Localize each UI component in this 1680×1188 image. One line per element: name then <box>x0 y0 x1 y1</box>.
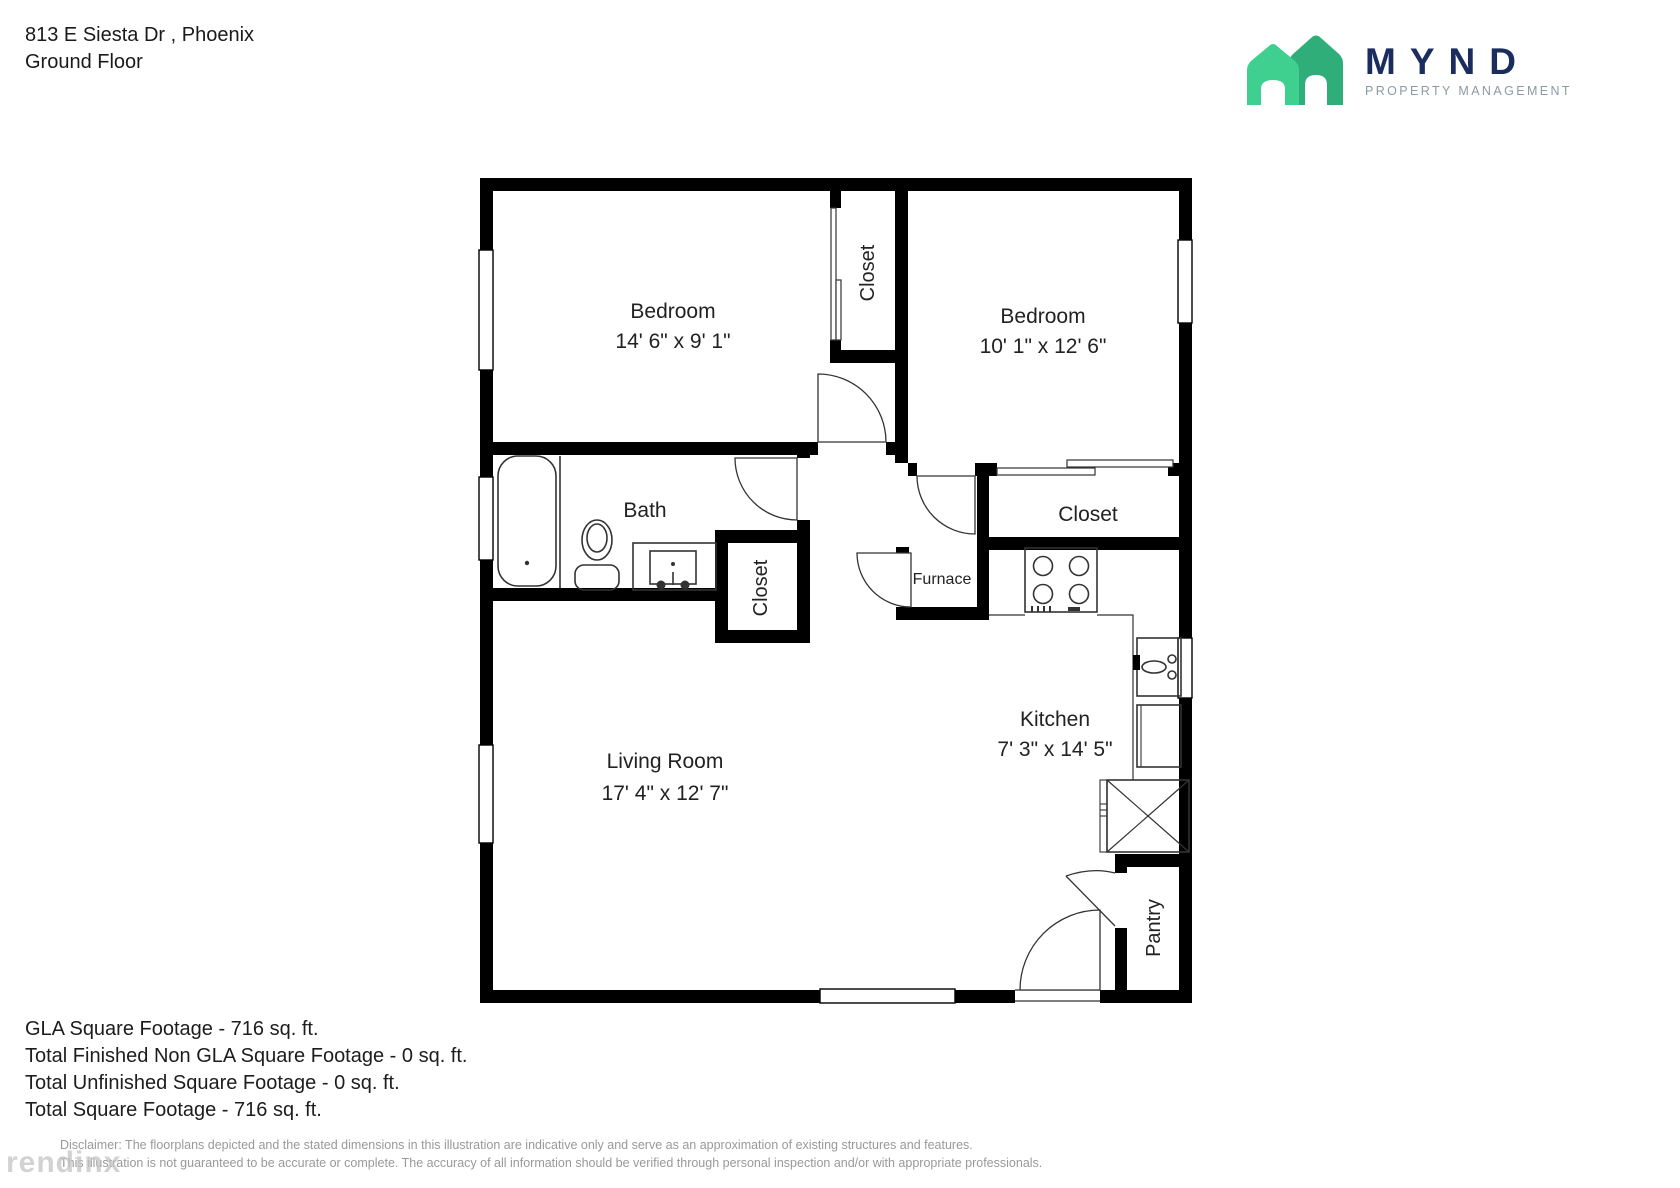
door-arc-bath <box>735 458 797 520</box>
gla-footage: GLA Square Footage - 716 sq. ft. <box>25 1016 467 1043</box>
window-living-bottom <box>820 989 955 1003</box>
mynd-logo: MYND PROPERTY MANAGEMENT <box>1243 33 1572 107</box>
window-bedroom1-left <box>479 250 493 370</box>
door-arc-bedroom2 <box>917 476 975 534</box>
window-bedroom2-right <box>1178 240 1192 323</box>
room-dims-bedroom1: 14' 6" x 9' 1" <box>615 330 730 353</box>
sliding-door-closet2-left <box>997 468 1095 475</box>
square-footage-summary: GLA Square Footage - 716 sq. ft. Total F… <box>25 1016 467 1124</box>
room-dims-living: 17' 4" x 12' 7" <box>602 782 729 805</box>
floor-plan: Bedroom 14' 6" x 9' 1" Closet Bedroom 10… <box>470 168 1212 1018</box>
unfinished-footage: Total Unfinished Square Footage - 0 sq. … <box>25 1070 467 1097</box>
stove-icon <box>1025 548 1097 612</box>
floor-plan-drawing: Bedroom 14' 6" x 9' 1" Closet Bedroom 10… <box>470 168 1212 1013</box>
room-label-closet-bedroom2: Closet <box>1058 503 1118 526</box>
bathtub-icon <box>498 456 556 586</box>
room-label-bedroom1: Bedroom <box>630 300 715 323</box>
room-dims-bedroom2: 10' 1" x 12' 6" <box>980 335 1107 358</box>
door-arc-bedroom1 <box>818 374 886 442</box>
room-label-furnace: Furnace <box>913 571 972 588</box>
total-footage: Total Square Footage - 716 sq. ft. <box>25 1097 467 1124</box>
dishwasher-icon <box>1137 705 1181 767</box>
plan-header: 813 E Siesta Dr , Phoenix Ground Floor <box>25 22 254 76</box>
sliding-door-closet1 <box>831 208 836 340</box>
room-label-closet-hall: Closet <box>750 559 772 616</box>
window-kitchen-right <box>1178 638 1192 698</box>
kitchen-sink-icon <box>1137 638 1181 696</box>
room-label-pantry: Pantry <box>1143 899 1165 957</box>
window-living-left <box>479 745 493 843</box>
sliding-door-closet2-right <box>1067 460 1173 467</box>
brand-name: MYND <box>1365 43 1572 81</box>
door-arc-pantry <box>1066 871 1115 876</box>
watermark: rendinx <box>6 1146 121 1180</box>
door-arc-furnace <box>857 553 911 607</box>
door-arc-entry <box>1020 910 1100 990</box>
room-label-bedroom2: Bedroom <box>1000 305 1085 328</box>
room-dims-kitchen: 7' 3" x 14' 5" <box>997 738 1112 761</box>
disclaimer-line2: This illustration is not guaranteed to b… <box>60 1154 1042 1172</box>
room-label-closet-bedrooms: Closet <box>857 244 879 301</box>
disclaimer-line1: Disclaimer: The floorplans depicted and … <box>60 1136 1042 1154</box>
disclaimer: Disclaimer: The floorplans depicted and … <box>60 1136 1042 1172</box>
room-label-bath: Bath <box>623 499 666 522</box>
floor-title: Ground Floor <box>25 49 254 76</box>
window-bath-left <box>479 477 493 560</box>
address-title: 813 E Siesta Dr , Phoenix <box>25 22 254 49</box>
brand-tagline: PROPERTY MANAGEMENT <box>1365 84 1572 98</box>
room-label-living: Living Room <box>607 750 724 773</box>
room-label-kitchen: Kitchen <box>1020 708 1090 731</box>
sliding-door-closet1-panel <box>836 280 841 340</box>
mynd-houses-icon <box>1243 33 1347 107</box>
bath-sink-icon <box>633 543 716 590</box>
finished-non-gla-footage: Total Finished Non GLA Square Footage - … <box>25 1043 467 1070</box>
door-gap-pantry <box>1113 873 1129 928</box>
